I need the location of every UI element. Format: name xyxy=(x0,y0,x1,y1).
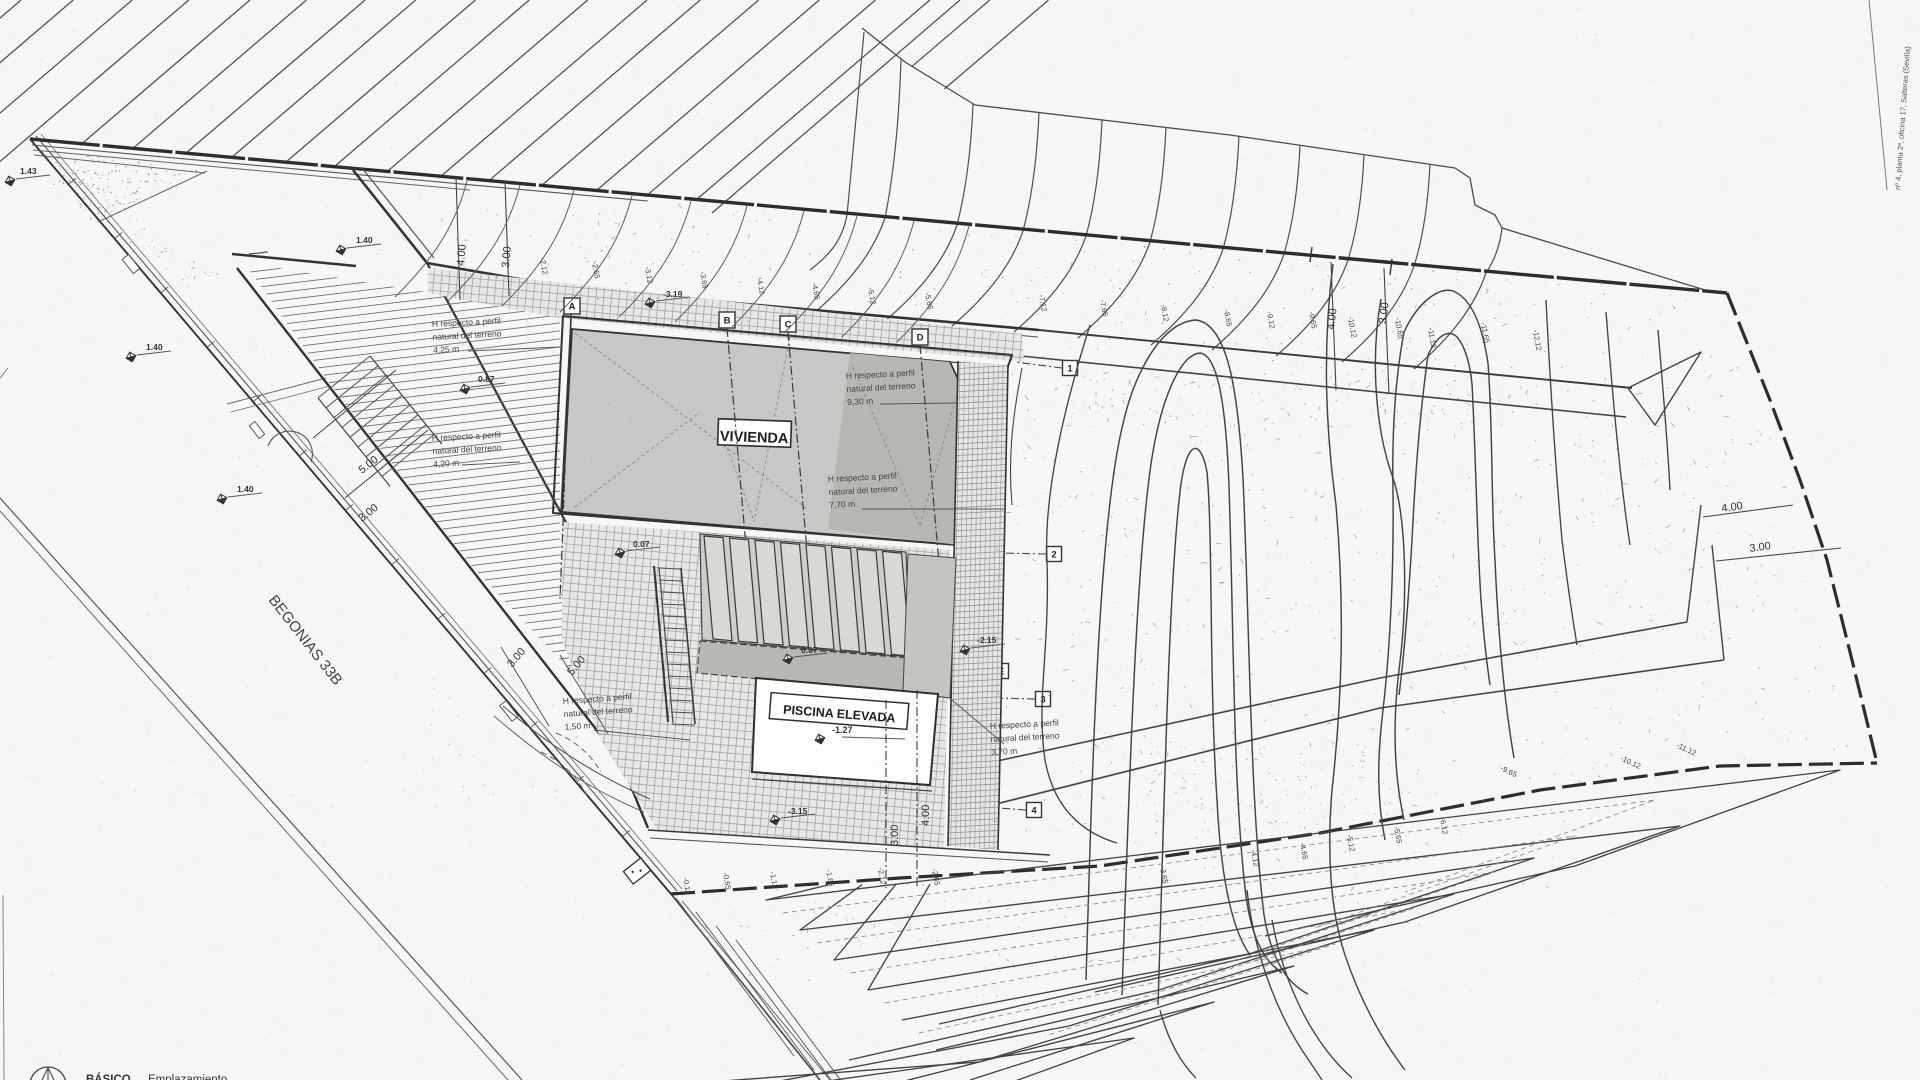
svg-text:-1.27: -1.27 xyxy=(832,725,853,735)
svg-text:1.40: 1.40 xyxy=(146,342,163,352)
svg-text:A: A xyxy=(569,302,576,313)
svg-text:0.07: 0.07 xyxy=(633,539,650,549)
svg-text:-2.15: -2.15 xyxy=(977,635,997,645)
svg-text:7,70 m: 7,70 m xyxy=(829,499,855,510)
svg-text:0.87: 0.87 xyxy=(478,374,495,384)
svg-text:1,50 m: 1,50 m xyxy=(564,720,591,732)
svg-text:0.07: 0.07 xyxy=(801,645,818,655)
svg-text:3,70 m: 3,70 m xyxy=(991,746,1017,757)
svg-text:3.00: 3.00 xyxy=(500,246,514,268)
svg-text:4.00: 4.00 xyxy=(920,805,932,826)
svg-text:-3.15: -3.15 xyxy=(788,806,808,816)
svg-text:1.43: 1.43 xyxy=(20,166,37,176)
svg-text:D: D xyxy=(917,333,924,344)
svg-text:B: B xyxy=(724,316,731,327)
svg-text:4.00: 4.00 xyxy=(455,244,469,266)
svg-text:-3.19: -3.19 xyxy=(663,289,683,299)
svg-text:4,20 m: 4,20 m xyxy=(433,458,459,469)
svg-text:1: 1 xyxy=(1067,364,1073,375)
svg-text:9,30 m: 9,30 m xyxy=(847,396,873,407)
svg-text:1.40: 1.40 xyxy=(356,235,373,245)
svg-text:2: 2 xyxy=(1051,550,1056,561)
svg-text:3.00: 3.00 xyxy=(889,825,901,846)
svg-text:4,25 m: 4,25 m xyxy=(433,344,459,355)
svg-text:4: 4 xyxy=(1031,806,1037,817)
svg-text:BÁSICO: BÁSICO xyxy=(86,1073,131,1080)
svg-text:1.40: 1.40 xyxy=(237,484,254,494)
svg-text:Emplazamiento: Emplazamiento xyxy=(148,1074,227,1080)
svg-text:VIVIENDA: VIVIENDA xyxy=(720,429,790,447)
